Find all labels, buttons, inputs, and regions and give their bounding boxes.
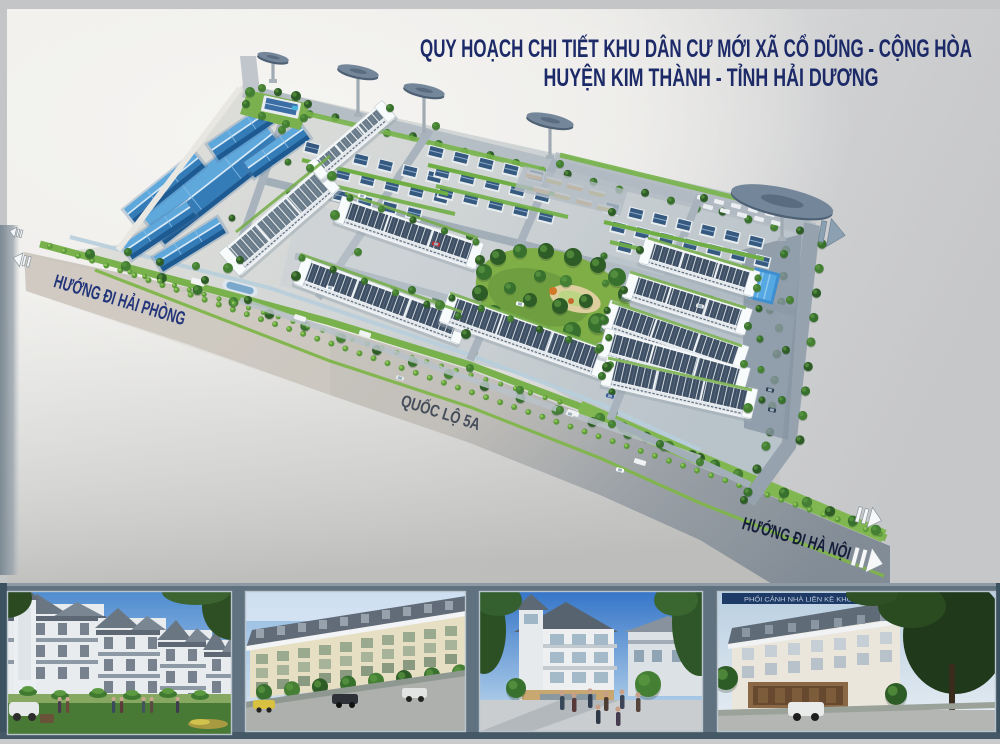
svg-text:HUYỆN KIM THÀNH - TỈNH HẢI DƯƠ: HUYỆN KIM THÀNH - TỈNH HẢI DƯƠNG	[544, 62, 879, 92]
svg-text:QUY HOẠCH CHI TIẾT KHU DÂN CƯ: QUY HOẠCH CHI TIẾT KHU DÂN CƯ MỚI XÃ CỔ …	[420, 33, 972, 63]
